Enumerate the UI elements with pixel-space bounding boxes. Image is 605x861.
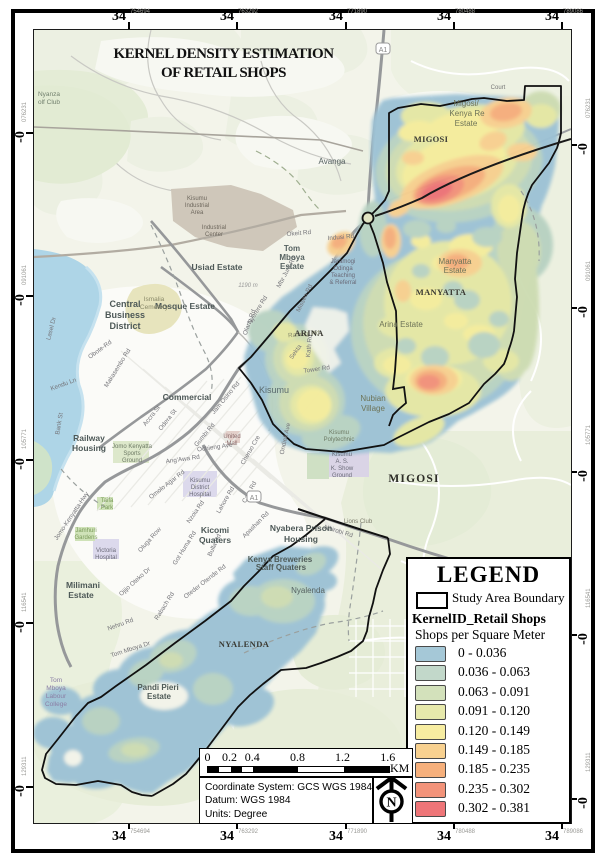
svg-text:Railway: Railway — [73, 433, 105, 443]
svg-text:Ground: Ground — [332, 473, 352, 479]
svg-text:Industrial: Industrial — [202, 225, 226, 231]
svg-text:Migosi/: Migosi/ — [453, 99, 479, 108]
svg-text:Nubian: Nubian — [360, 394, 385, 403]
svg-text:Taifa: Taifa — [101, 498, 114, 504]
svg-text:Central: Central — [109, 299, 140, 309]
svg-text:Gardens: Gardens — [74, 535, 97, 541]
svg-text:A1: A1 — [250, 495, 259, 502]
svg-text:1190 m: 1190 m — [238, 283, 258, 289]
svg-text:Kenya Re: Kenya Re — [449, 109, 485, 118]
svg-text:Polytechnic: Polytechnic — [324, 437, 355, 443]
svg-text:Manyatta: Manyatta — [439, 257, 472, 266]
svg-text:Area: Area — [191, 210, 204, 216]
svg-text:Jomo Kenyatta: Jomo Kenyatta — [112, 444, 153, 450]
svg-text:Mboya: Mboya — [46, 685, 66, 692]
svg-text:Sports: Sports — [123, 451, 140, 457]
svg-text:olf Club: olf Club — [38, 99, 60, 106]
svg-text:United: United — [223, 434, 240, 440]
svg-text:N: N — [386, 796, 396, 811]
svg-text:Arina Estate: Arina Estate — [379, 320, 423, 329]
svg-text:Estate: Estate — [147, 692, 172, 701]
svg-text:ARINA: ARINA — [294, 328, 324, 338]
svg-text:Nyanza: Nyanza — [38, 91, 60, 98]
svg-text:District: District — [191, 485, 210, 491]
svg-text:Housing: Housing — [72, 443, 106, 453]
svg-text:Teaching: Teaching — [331, 273, 355, 279]
svg-text:Business: Business — [105, 310, 145, 320]
svg-text:College: College — [45, 701, 67, 708]
svg-text:MIGOSI: MIGOSI — [414, 134, 449, 144]
svg-text:Hospital: Hospital — [189, 492, 211, 498]
svg-text:Village: Village — [361, 404, 385, 413]
svg-text:Jaramogi: Jaramogi — [331, 259, 356, 265]
svg-text:Estate: Estate — [280, 262, 305, 271]
svg-text:Commercial: Commercial — [163, 392, 212, 402]
svg-text:Kisumu: Kisumu — [329, 430, 349, 436]
svg-text:Hospital: Hospital — [95, 555, 117, 561]
svg-text:Quaters: Quaters — [199, 535, 231, 545]
svg-text:Center: Center — [205, 232, 223, 238]
svg-text:Odinga: Odinga — [333, 266, 353, 272]
svg-text:Ismalia: Ismalia — [144, 296, 165, 303]
svg-text:Housing: Housing — [284, 534, 318, 544]
svg-text:Lions Club: Lions Club — [344, 519, 373, 525]
svg-text:Tom: Tom — [50, 677, 62, 684]
svg-text:Mall: Mall — [226, 441, 237, 447]
svg-text:Mboya: Mboya — [279, 253, 305, 262]
svg-text:Kisumu: Kisumu — [190, 478, 210, 484]
svg-text:Victoria: Victoria — [96, 548, 117, 554]
svg-text:Jamhuri: Jamhuri — [75, 528, 96, 534]
svg-text:A. S.: A. S. — [335, 459, 348, 465]
svg-text:Estate: Estate — [68, 590, 94, 600]
svg-text:Park: Park — [101, 505, 114, 511]
svg-text:K. Show: K. Show — [331, 466, 354, 472]
svg-text:Nyalenda: Nyalenda — [291, 586, 325, 595]
svg-text:MANYATTA: MANYATTA — [416, 287, 467, 297]
svg-text:& Referral: & Referral — [329, 280, 356, 286]
svg-text:Kisumu: Kisumu — [332, 452, 352, 458]
svg-text:Milimani: Milimani — [66, 580, 100, 590]
svg-text:Kicomi: Kicomi — [201, 525, 229, 535]
svg-text:Pandi Pieri: Pandi Pieri — [137, 683, 178, 692]
svg-text:Tom: Tom — [284, 244, 300, 253]
svg-text:Estate: Estate — [444, 266, 467, 275]
svg-text:Kisumu: Kisumu — [259, 385, 289, 395]
svg-text:Staff Quaters: Staff Quaters — [256, 563, 307, 572]
svg-text:Cemetery: Cemetery — [140, 304, 169, 311]
svg-text:Usiad Estate: Usiad Estate — [191, 262, 242, 272]
svg-text:Industrial: Industrial — [185, 203, 209, 209]
svg-text:NYALENDA: NYALENDA — [219, 639, 270, 649]
svg-text:MIGOSI: MIGOSI — [388, 473, 439, 485]
svg-text:Ground: Ground — [122, 458, 142, 464]
svg-text:Labour: Labour — [46, 693, 67, 700]
svg-text:Estate: Estate — [455, 119, 478, 128]
svg-text:Court: Court — [491, 85, 506, 91]
svg-text:Kisumu: Kisumu — [187, 196, 207, 202]
svg-text:District: District — [109, 321, 140, 331]
svg-text:Avanga: Avanga — [319, 157, 347, 166]
svg-text:Nyabera Prison: Nyabera Prison — [270, 523, 332, 533]
